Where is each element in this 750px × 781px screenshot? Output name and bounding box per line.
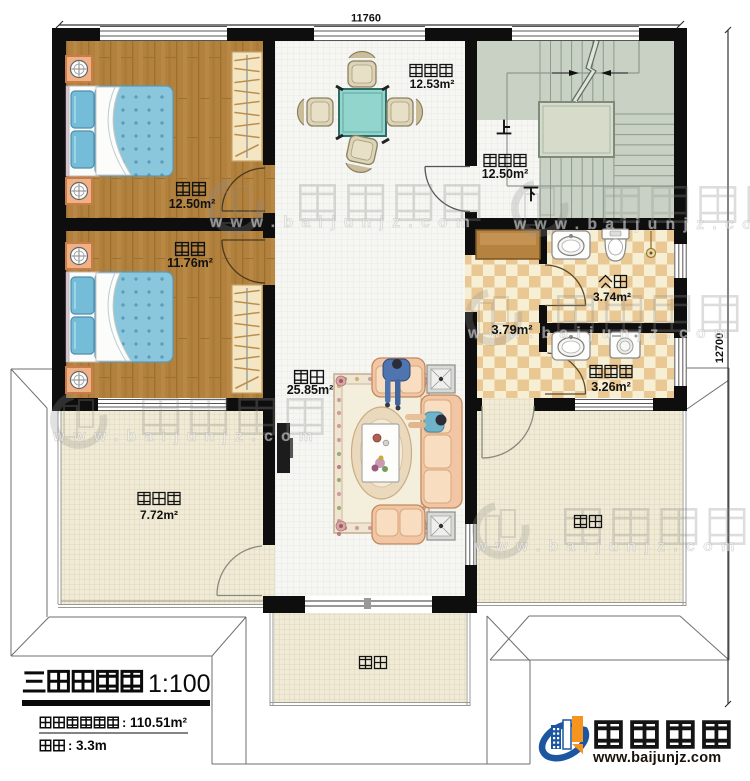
svg-text:7.72m²: 7.72m²: [140, 508, 178, 522]
svg-text::: :: [122, 715, 126, 730]
svg-text:12.53m²: 12.53m²: [410, 77, 455, 91]
svg-text:www.baijunjz.com: www.baijunjz.com: [513, 216, 750, 233]
svg-text:3.3m: 3.3m: [76, 738, 107, 753]
svg-text:www.baijunjz.com: www.baijunjz.com: [52, 428, 321, 445]
svg-text:www.baijunjz.com: www.baijunjz.com: [209, 214, 478, 231]
svg-text::: :: [68, 738, 72, 753]
svg-text:3.79m²: 3.79m²: [491, 322, 533, 337]
svg-text:1:100: 1:100: [148, 670, 211, 698]
svg-text:3.26m²: 3.26m²: [591, 380, 631, 394]
svg-text:www.baijunjz.com: www.baijunjz.com: [592, 750, 721, 766]
svg-text:11.76m²: 11.76m²: [167, 256, 213, 270]
svg-text:12.50m²: 12.50m²: [169, 197, 216, 211]
svg-text:www.baijunjz.com: www.baijunjz.com: [474, 538, 743, 555]
svg-text:3.74m²: 3.74m²: [593, 290, 631, 304]
svg-text:25.85m²: 25.85m²: [287, 383, 334, 397]
svg-text:12.50m²: 12.50m²: [482, 167, 529, 181]
svg-text:110.51m²: 110.51m²: [130, 715, 188, 730]
svg-text:11760: 11760: [351, 13, 381, 25]
